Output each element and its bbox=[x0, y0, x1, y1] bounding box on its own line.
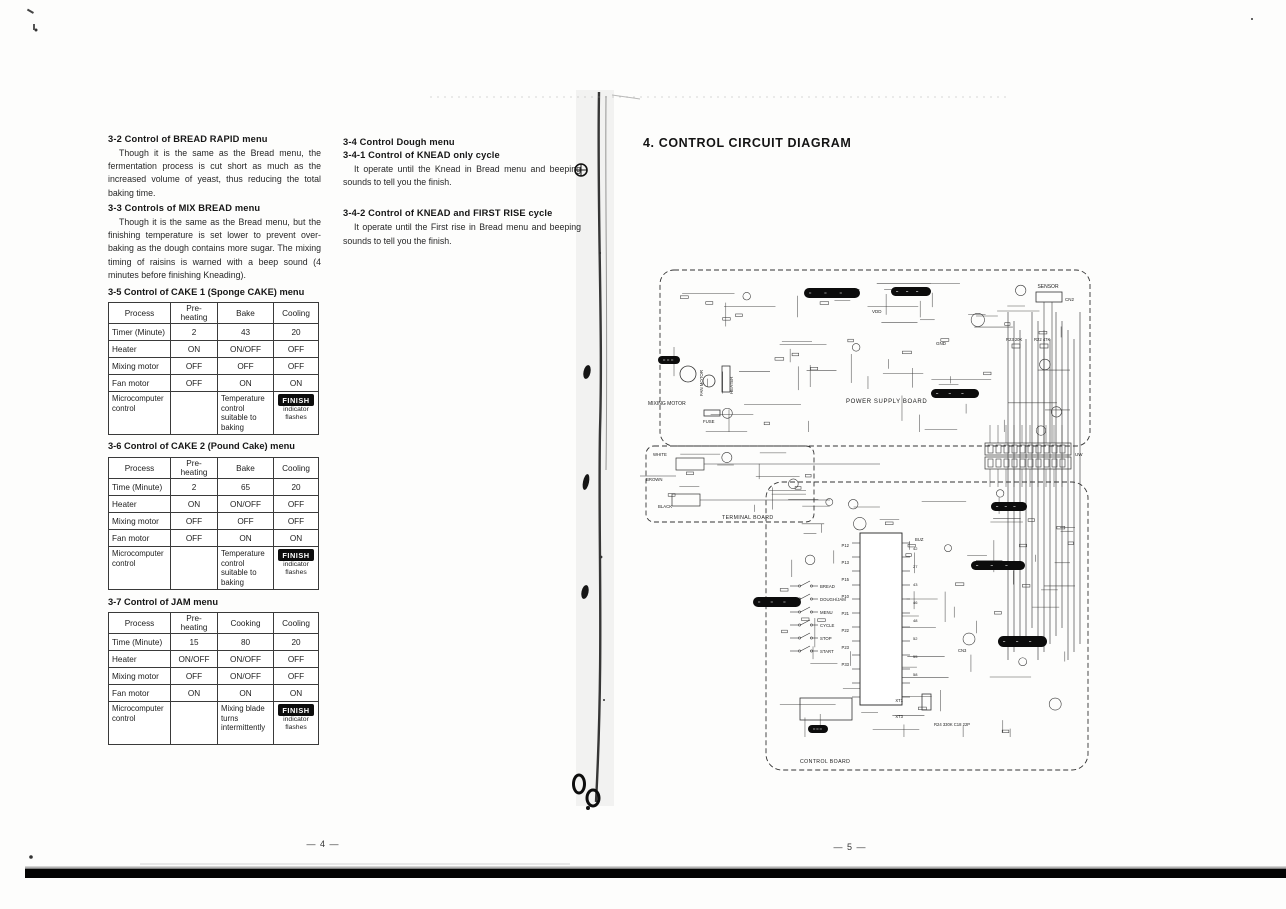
bottom-scan-bar bbox=[25, 864, 1286, 879]
gutter-shadow bbox=[27, 9, 1253, 859]
scanned-page-spread: 3-2 Control of BREAD RAPID menu Though i… bbox=[0, 0, 1286, 909]
scan-artifacts bbox=[0, 0, 1286, 909]
